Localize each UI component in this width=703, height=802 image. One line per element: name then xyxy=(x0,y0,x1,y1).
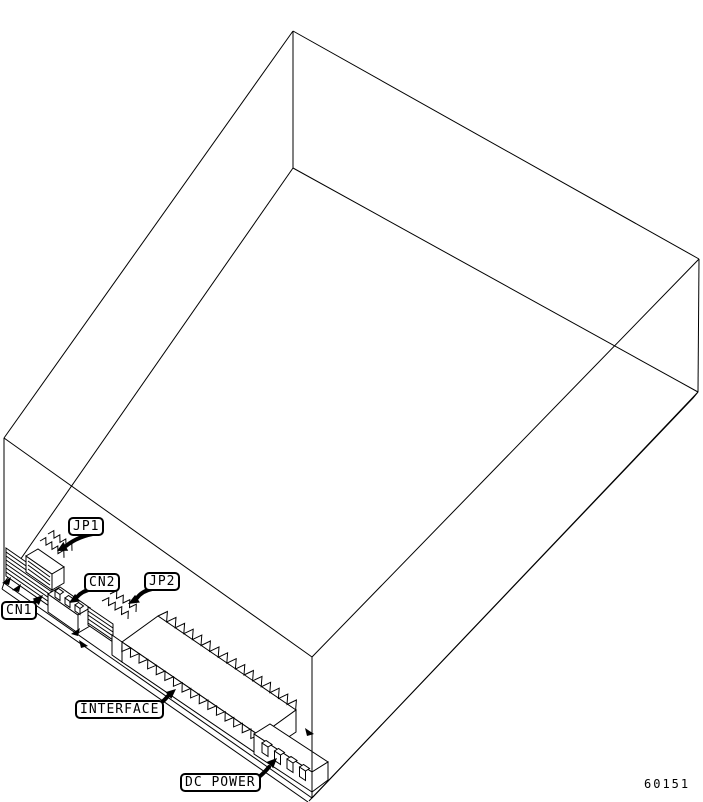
callout-label-interface: INTERFACE xyxy=(75,700,164,719)
device-wireframe-box xyxy=(4,31,699,798)
callout-label-jp1: JP1 xyxy=(68,517,104,536)
callout-label-jp2: JP2 xyxy=(144,572,180,591)
callout-label-cn2: CN2 xyxy=(84,573,120,592)
technical-drawing-page: JP1 CN2 JP2 CN1 INTERFACE DC POWER 60151 xyxy=(0,0,703,802)
leader-jp2 xyxy=(128,589,152,604)
device-isometric-drawing xyxy=(0,0,703,802)
connector-jp2-drawing xyxy=(102,591,136,619)
pcb-base-edge xyxy=(2,392,698,802)
callout-label-cn1: CN1 xyxy=(1,601,37,620)
figure-number: 60151 xyxy=(644,778,690,790)
callout-label-dc-power: DC POWER xyxy=(180,773,261,792)
